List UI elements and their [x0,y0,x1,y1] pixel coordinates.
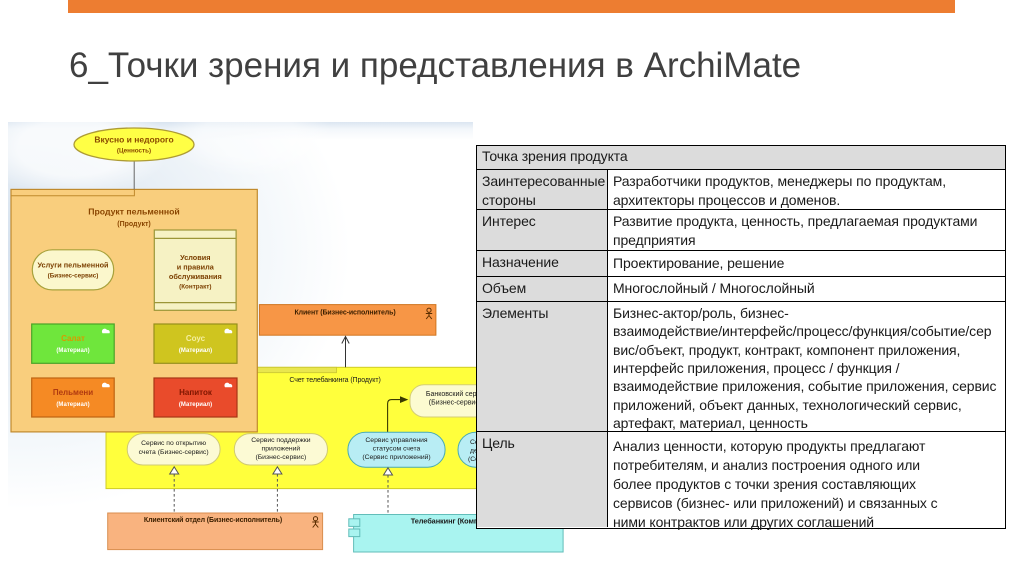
svg-text:обслуживания: обслуживания [169,272,222,281]
svg-text:приложений: приложений [262,445,301,453]
svg-text:Сервис по открытию: Сервис по открытию [141,440,206,447]
svg-text:(Бизнес-сервис): (Бизнес-сервис) [48,272,99,279]
svg-text:Условия: Условия [180,253,210,262]
svg-text:(Сервис приложений): (Сервис приложений) [362,453,430,461]
svg-text:(Продукт): (Продукт) [117,221,151,228]
svg-text:(Материал): (Материал) [179,348,212,354]
svg-text:(Контракт): (Контракт) [179,284,211,291]
svg-text:(Материал): (Материал) [56,348,89,354]
svg-text:(Материал): (Материал) [56,402,89,408]
svg-text:(Материал): (Материал) [179,402,212,408]
svg-text:Соус: Соус [186,334,206,343]
svg-text:Напиток: Напиток [179,388,213,397]
svg-text:Клиентский отдел (Бизнес-испол: Клиентский отдел (Бизнес-исполнитель) [144,516,282,524]
svg-text:Сервис управления: Сервис управления [365,437,428,444]
svg-text:(Ценность): (Ценность) [117,148,151,155]
svg-text:счета (Бизнес-сервис): счета (Бизнес-сервис) [139,449,209,456]
svg-text:Вкусно и недорого: Вкусно и недорого [94,135,173,145]
svg-text:Сервис поддержки: Сервис поддержки [251,437,310,444]
svg-text:(Бизнес-сервис): (Бизнес-сервис) [429,400,481,407]
svg-text:Салат: Салат [61,334,85,343]
svg-text:и правила: и правила [177,263,215,272]
svg-text:Пельмени: Пельмени [53,388,93,397]
svg-text:Счет телебанкинга (Продукт): Счет телебанкинга (Продукт) [289,376,380,384]
svg-text:статусом счета: статусом счета [373,446,421,453]
svg-text:Услуги пельменной: Услуги пельменной [37,260,108,269]
svg-text:Продукт пельменной: Продукт пельменной [88,207,180,217]
svg-text:Клиент (Бизнес-исполнитель): Клиент (Бизнес-исполнитель) [294,310,395,317]
svg-text:(Бизнес-сервис): (Бизнес-сервис) [255,454,306,461]
